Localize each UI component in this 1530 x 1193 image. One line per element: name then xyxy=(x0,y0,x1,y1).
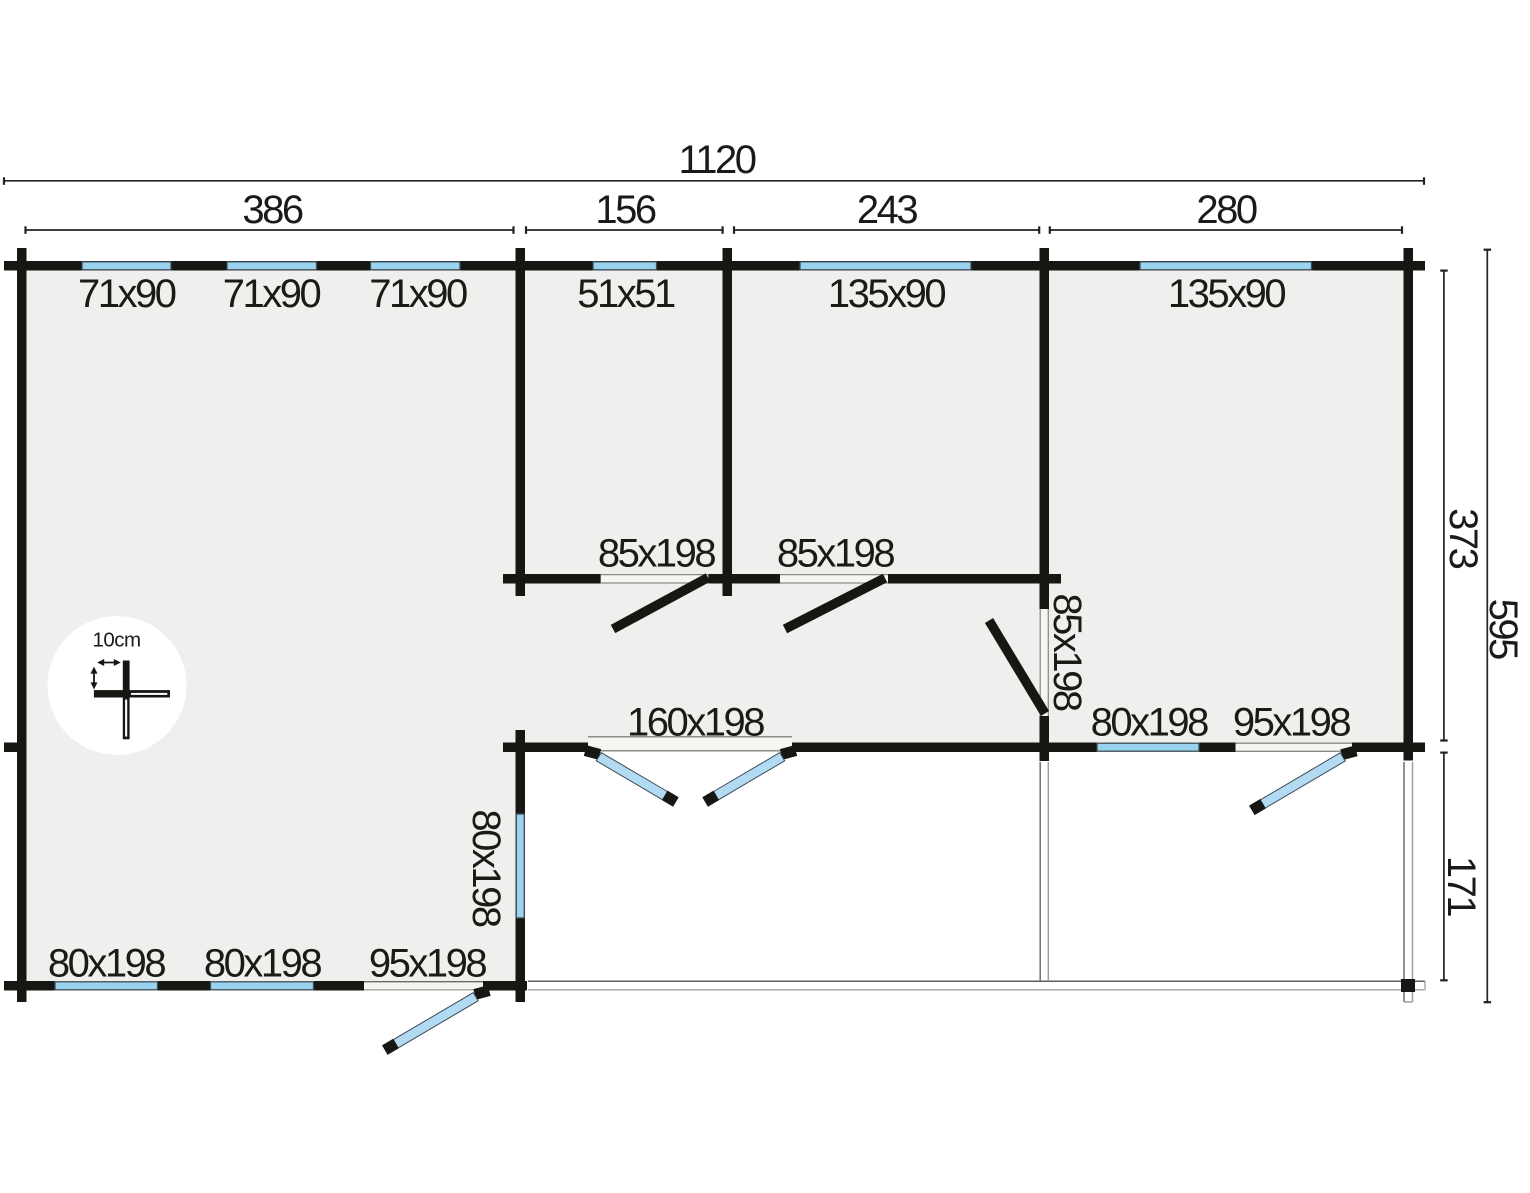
svg-text:1120: 1120 xyxy=(678,138,755,182)
svg-text:71x90: 71x90 xyxy=(78,272,176,316)
svg-text:280: 280 xyxy=(1196,188,1256,232)
svg-text:160x198: 160x198 xyxy=(627,701,764,745)
svg-text:135x90: 135x90 xyxy=(828,272,945,316)
svg-text:85x198: 85x198 xyxy=(777,532,894,576)
svg-text:595: 595 xyxy=(1481,599,1525,659)
svg-text:243: 243 xyxy=(857,188,917,232)
svg-text:85x198: 85x198 xyxy=(1045,593,1089,710)
svg-text:80x198: 80x198 xyxy=(204,942,321,986)
svg-text:386: 386 xyxy=(242,188,302,232)
svg-text:95x198: 95x198 xyxy=(369,942,486,986)
svg-text:85x198: 85x198 xyxy=(598,532,715,576)
svg-text:51x51: 51x51 xyxy=(577,272,675,316)
svg-text:135x90: 135x90 xyxy=(1168,272,1285,316)
svg-text:171: 171 xyxy=(1439,856,1483,916)
svg-text:95x198: 95x198 xyxy=(1233,701,1350,745)
svg-text:373: 373 xyxy=(1441,508,1485,568)
svg-text:80x198: 80x198 xyxy=(464,809,508,926)
svg-text:71x90: 71x90 xyxy=(223,272,321,316)
svg-text:71x90: 71x90 xyxy=(369,272,467,316)
svg-text:80x198: 80x198 xyxy=(1091,701,1208,745)
svg-text:156: 156 xyxy=(595,188,655,232)
svg-text:10cm: 10cm xyxy=(93,629,141,652)
svg-text:80x198: 80x198 xyxy=(48,942,165,986)
